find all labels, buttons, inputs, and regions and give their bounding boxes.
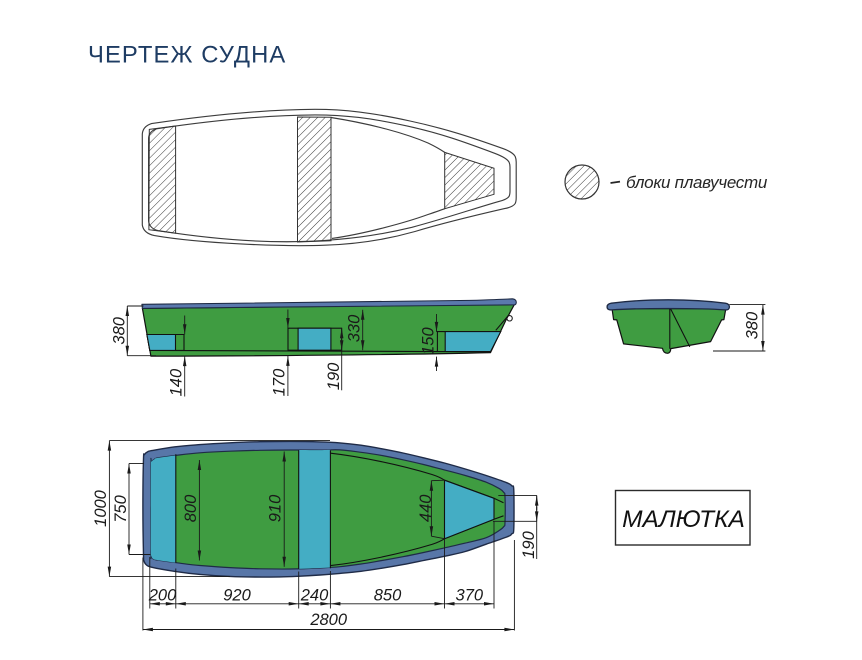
svg-text:850: 850	[374, 587, 402, 605]
svg-text:380: 380	[744, 311, 762, 339]
svg-text:ЧЕРТЕЖ СУДНА: ЧЕРТЕЖ СУДНА	[88, 42, 286, 69]
svg-text:380: 380	[111, 316, 129, 344]
svg-text:910: 910	[266, 494, 284, 522]
svg-text:190: 190	[520, 530, 538, 558]
svg-text:750: 750	[112, 494, 130, 522]
svg-text:440: 440	[417, 494, 435, 522]
svg-text:170: 170	[270, 368, 288, 396]
svg-text:МАЛЮТКА: МАЛЮТКА	[622, 506, 745, 533]
svg-text:2800: 2800	[309, 611, 348, 629]
svg-text:140: 140	[168, 368, 186, 396]
svg-text:1000: 1000	[92, 489, 110, 527]
svg-text:240: 240	[300, 587, 329, 605]
svg-text:330: 330	[346, 314, 364, 342]
svg-text:блоки плавучести: блоки плавучести	[626, 173, 768, 192]
svg-text:370: 370	[456, 587, 484, 605]
svg-text:150: 150	[419, 327, 437, 355]
svg-text:190: 190	[325, 362, 343, 390]
svg-text:200: 200	[148, 587, 177, 605]
svg-text:800: 800	[182, 494, 200, 522]
svg-text:920: 920	[223, 587, 251, 605]
